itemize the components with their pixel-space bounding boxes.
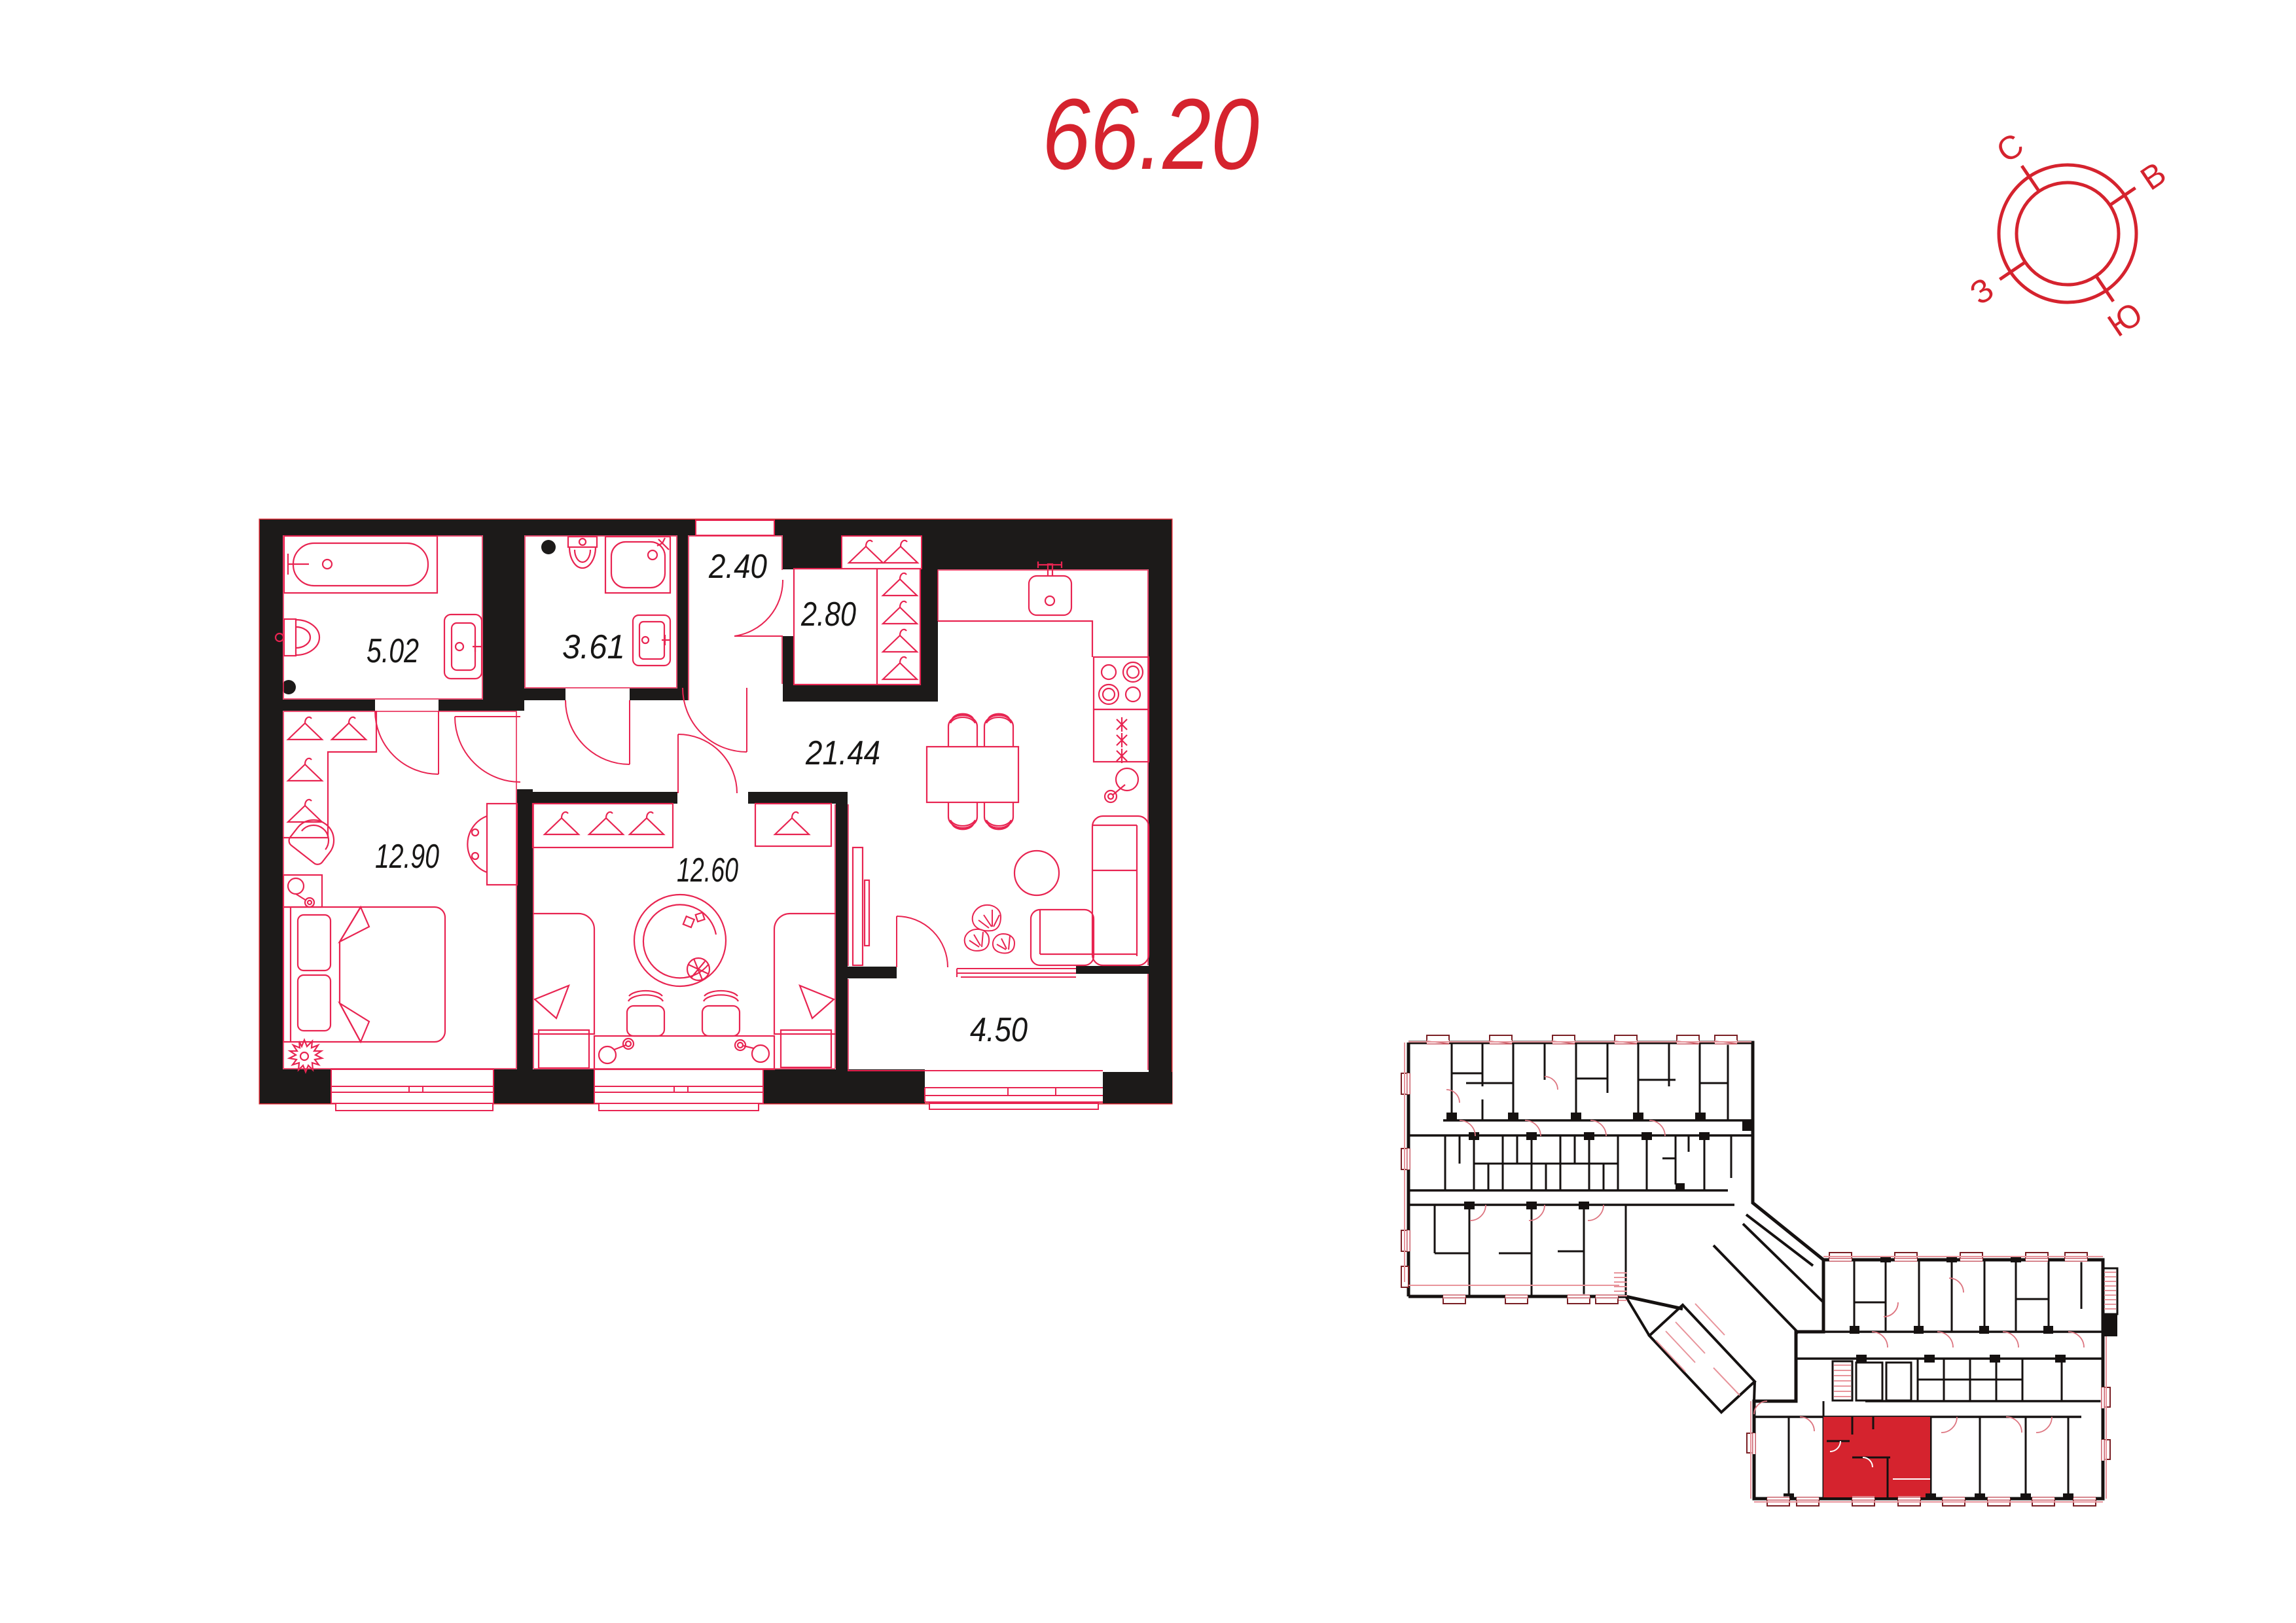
svg-text:12.60: 12.60 xyxy=(677,851,738,889)
svg-text:4.50: 4.50 xyxy=(970,1011,1028,1049)
svg-text:21.44: 21.44 xyxy=(805,734,880,772)
svg-text:66.20: 66.20 xyxy=(1042,78,1259,190)
svg-text:3.61: 3.61 xyxy=(562,628,625,666)
svg-text:2.40: 2.40 xyxy=(708,548,767,586)
svg-text:2.80: 2.80 xyxy=(800,596,856,633)
svg-text:12.90: 12.90 xyxy=(375,838,439,876)
svg-text:5.02: 5.02 xyxy=(367,632,419,670)
